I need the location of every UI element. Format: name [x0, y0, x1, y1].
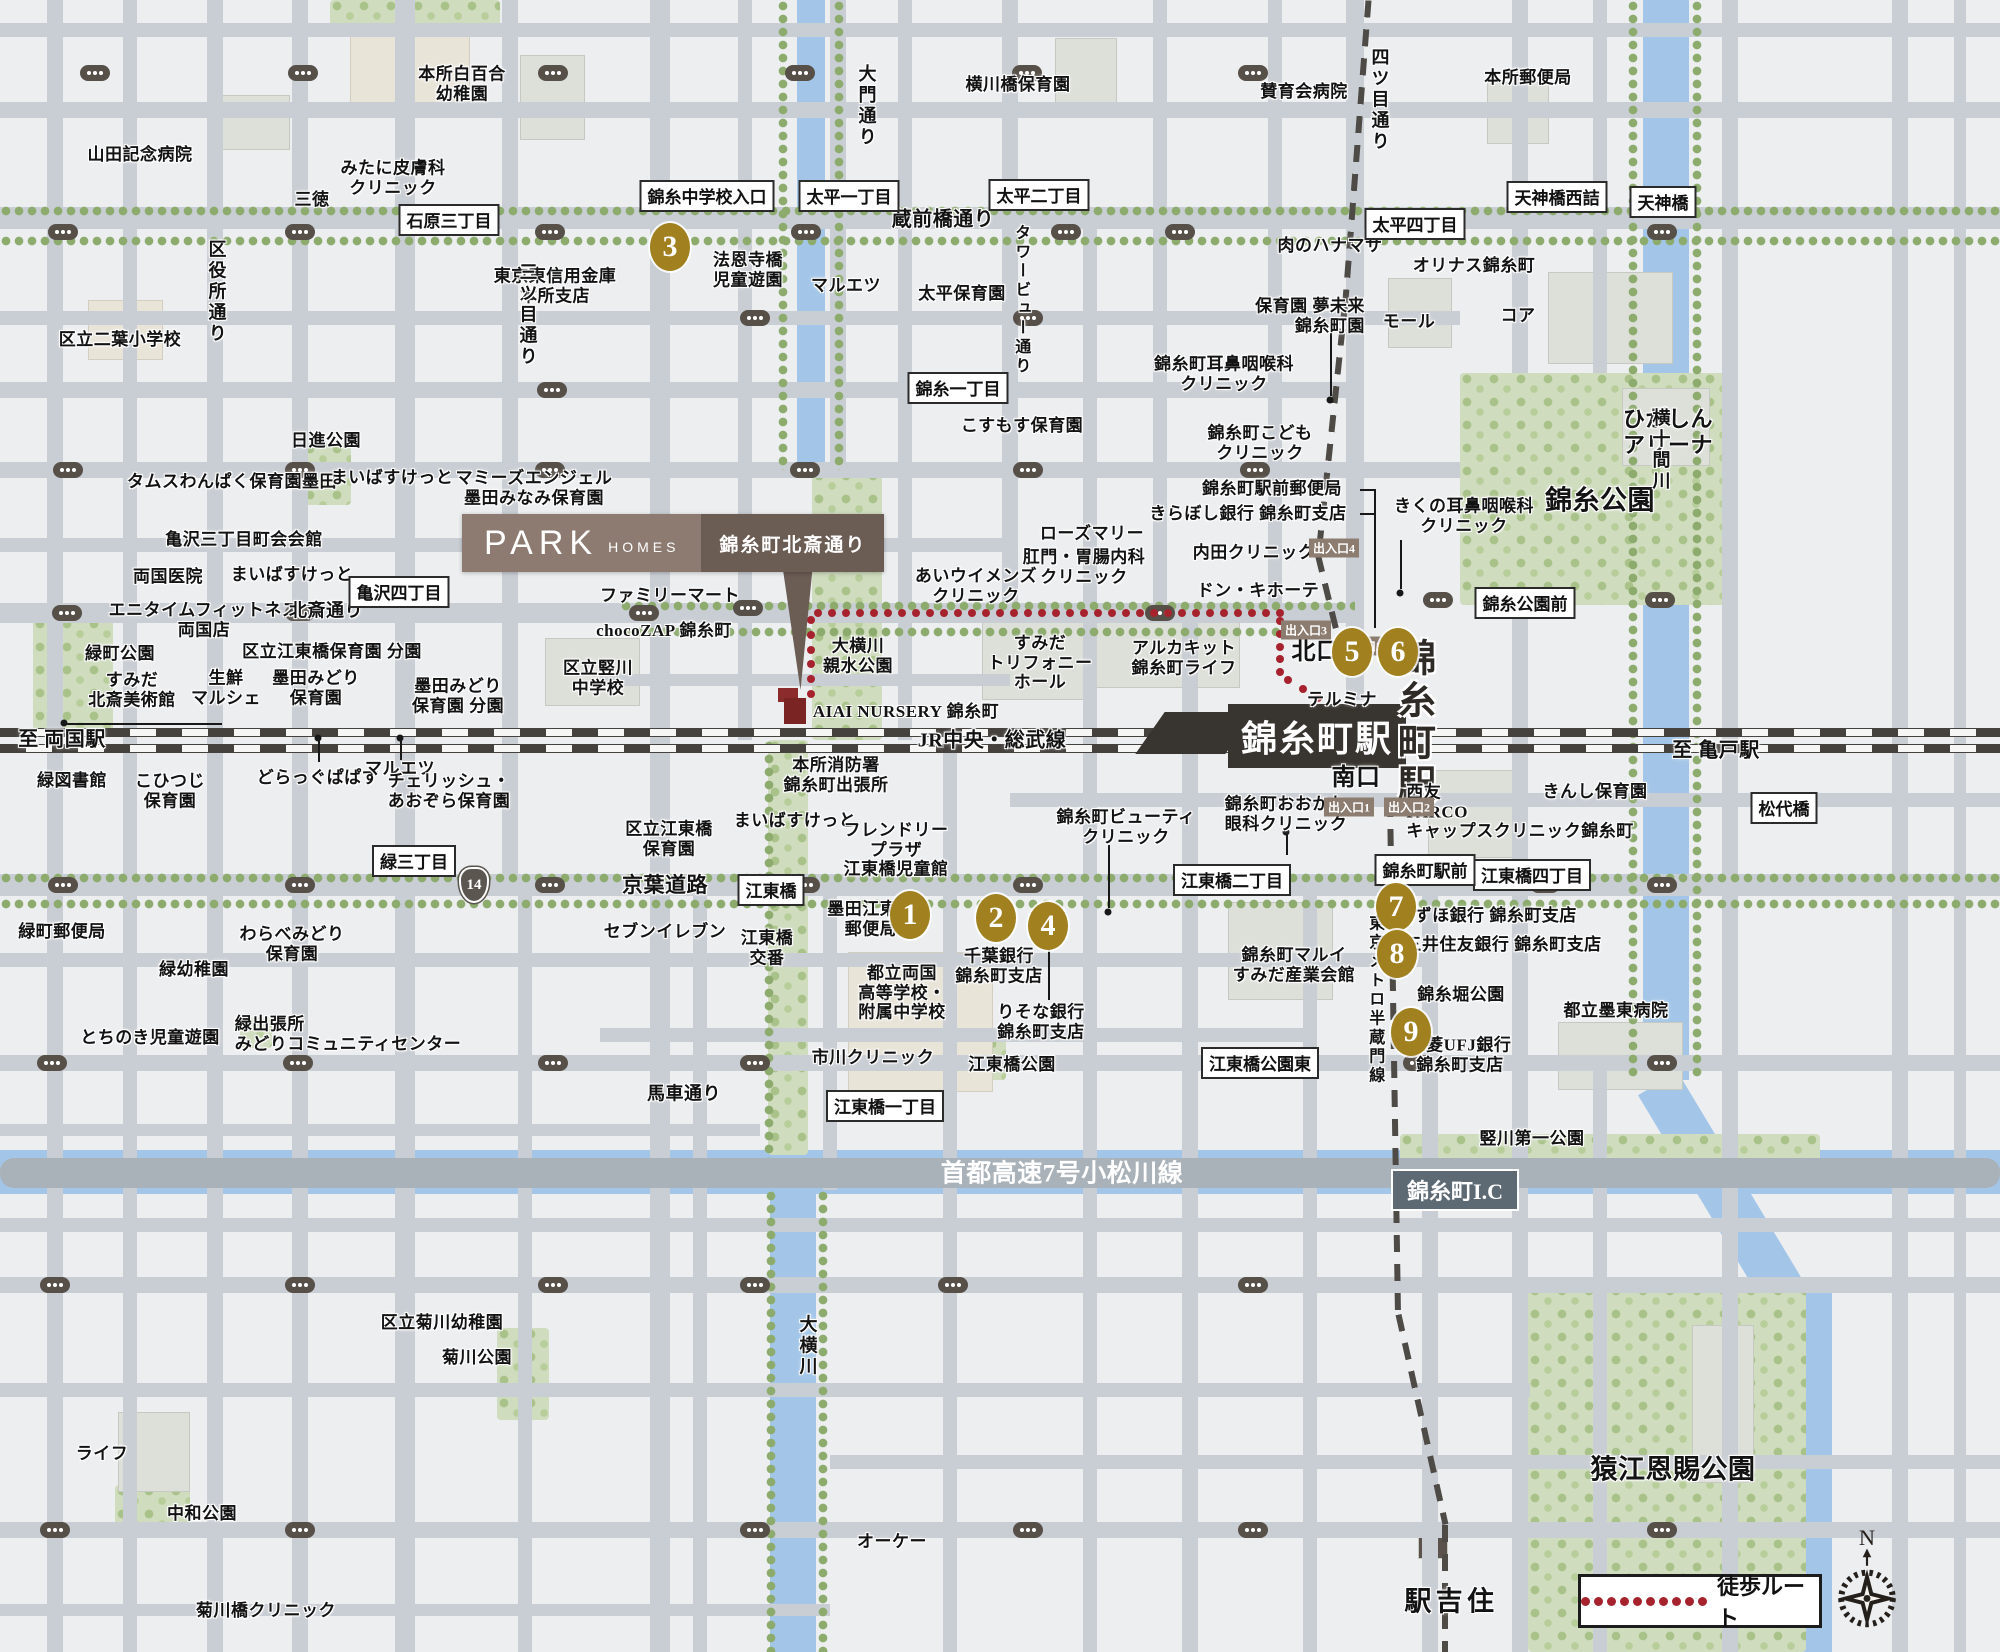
- walk-route-dot: [1276, 668, 1284, 676]
- map-label: 三井住友銀行 錦糸町支店: [1404, 935, 1601, 955]
- leader-line: [1286, 835, 1288, 855]
- bus-stop-icon: [740, 1055, 770, 1071]
- road-vertical: [1722, 0, 1738, 1652]
- map-label: 緑幼稚園: [159, 960, 229, 980]
- map-label: 大横川 親水公園: [823, 636, 893, 675]
- street-trees: [834, 0, 845, 470]
- intersection-name-box: 天神橋: [1630, 186, 1697, 218]
- property-name: 錦糸町北斎通り: [701, 514, 884, 572]
- bus-stop-icon: [1051, 224, 1081, 240]
- bus-stop-icon: [48, 877, 78, 893]
- map-label: 錦糸堀公園: [1417, 985, 1505, 1005]
- walk-route-dot: [1080, 609, 1088, 617]
- bus-stop-icon: [785, 65, 815, 81]
- intersection-name-box: 錦糸町駅前: [1375, 854, 1476, 886]
- property-location-icon: [778, 688, 808, 724]
- walk-route-dot: [898, 609, 906, 617]
- walk-route-dot: [870, 609, 878, 617]
- bus-stop-icon: [1647, 1055, 1677, 1071]
- poi-dot: [397, 735, 404, 742]
- map-label: 菊川橋クリニック: [196, 1601, 336, 1621]
- poi-dot: [1105, 909, 1112, 916]
- map-label: ライフ: [76, 1444, 129, 1464]
- map-label: 三ツ目通り: [517, 263, 538, 368]
- map-label: セブンイレブン: [604, 922, 727, 942]
- map-label: きくの耳鼻咽喉科 クリニック: [1394, 496, 1534, 535]
- map-label: まいばすけっと: [231, 565, 354, 585]
- map-label: 法恩寺橋 児童遊園: [713, 250, 783, 289]
- road-vertical: [292, 0, 308, 1652]
- map-label: 南口: [1332, 765, 1381, 793]
- map-label: 区立二葉小学校: [59, 330, 182, 350]
- walk-route-dot: [814, 609, 822, 617]
- map-label: 区立菊川幼稚園: [381, 1313, 504, 1333]
- legend-route-dots: [1581, 1597, 1707, 1606]
- bus-stop-icon: [1647, 877, 1677, 893]
- bus-stop-icon: [537, 382, 567, 398]
- street-trees: [1692, 0, 1703, 1080]
- map-label: 錦糸町駅前郵便局: [1202, 479, 1342, 499]
- park-homes-logo: PARK HOMES 錦糸町北斎通り: [462, 514, 884, 572]
- map-label: ファミリーマート: [600, 586, 740, 606]
- brand-sub-text: HOMES: [608, 539, 679, 555]
- intersection-name-box: 緑三丁目: [372, 845, 456, 877]
- map-label: 緑図書館: [37, 771, 107, 791]
- walk-route-dot: [807, 675, 815, 683]
- bus-stop-icon: [80, 65, 110, 81]
- numbered-marker: 1: [890, 891, 930, 939]
- map-label: コア: [1501, 306, 1536, 326]
- bus-stop-icon: [1013, 877, 1043, 893]
- intersection-name-box: 太平二丁目: [989, 179, 1090, 211]
- map-label: わらべみどり 保育園: [240, 924, 345, 963]
- map-label: タムスわんぱく保育園墨田: [127, 472, 337, 492]
- map-label: テルミナ: [1307, 690, 1377, 710]
- road-vertical: [123, 0, 137, 1652]
- map-label: 生鮮 マルシェ: [191, 668, 261, 707]
- intersection-name-box: 亀沢四丁目: [349, 576, 450, 608]
- map-label: 江東橋公園: [968, 1055, 1056, 1075]
- poi-dot: [1327, 397, 1334, 404]
- walk-route-dot: [996, 609, 1004, 617]
- walk-route-dot: [1234, 609, 1242, 617]
- map-label: 山田記念病院: [88, 145, 193, 165]
- walk-route-dot: [1108, 609, 1116, 617]
- bus-stop-icon: [740, 1522, 770, 1538]
- bus-stop-icon: [283, 1055, 313, 1071]
- area-map: 錦糸町駅 錦糸町駅 PARK HOMES 錦糸町北斎通り 14 徒歩ルート N …: [0, 0, 2000, 1652]
- walk-route-dot: [884, 609, 892, 617]
- map-label: 緑町公園: [85, 644, 155, 664]
- bus-stop-icon: [538, 65, 568, 81]
- numbered-marker: 2: [976, 894, 1016, 942]
- walk-route-dot: [1206, 609, 1214, 617]
- map-label: 大門通り: [856, 64, 877, 148]
- bus-stop-icon: [535, 877, 565, 893]
- walk-route-dot: [982, 609, 990, 617]
- road-vertical: [47, 0, 63, 1652]
- map-label: 竪川第一公園: [1480, 1129, 1585, 1149]
- bus-stop-icon: [538, 1055, 568, 1071]
- map-label: JR中央・総武線: [918, 729, 1066, 752]
- metro-exit-label: 出入口2: [1384, 798, 1434, 817]
- numbered-marker: 7: [1376, 883, 1416, 931]
- walk-route-dot: [940, 609, 948, 617]
- bus-stop-icon: [629, 605, 659, 621]
- walk-route-dot: [1248, 609, 1256, 617]
- numbered-marker: 6: [1378, 628, 1418, 676]
- numbered-marker: 3: [650, 223, 690, 271]
- map-label: オーケー: [857, 1532, 927, 1552]
- compass-rose-icon: N: [1824, 1528, 1910, 1644]
- leader-line: [1108, 845, 1110, 908]
- bus-stop-icon: [1645, 592, 1675, 608]
- map-label: 至 亀戸駅: [1672, 739, 1760, 762]
- map-label: タワービュー通り: [1011, 224, 1030, 376]
- map-label: マルエツ: [811, 276, 881, 296]
- map-label: まいばすけっと: [331, 468, 454, 488]
- leader-line: [1330, 333, 1332, 396]
- road-vertical: [1954, 0, 1966, 1652]
- map-label: 区立竪川 中学校: [563, 658, 633, 697]
- walk-route-dot: [1276, 655, 1284, 663]
- map-label: 緑出張所 みどりコミュニティセンター: [235, 1014, 461, 1053]
- street-trees: [818, 1190, 829, 1652]
- expressway-ic-label: 錦糸町I.C: [1393, 1171, 1517, 1209]
- intersection-name-box: 江東橋四丁目: [1473, 859, 1591, 891]
- map-label: とちのき児童遊園: [80, 1028, 220, 1048]
- walk-route-dot: [912, 609, 920, 617]
- walk-route-dot: [1299, 685, 1307, 693]
- map-label: こひつじ 保育園: [135, 771, 205, 810]
- map-label: みたに皮膚科 クリニック: [341, 158, 446, 197]
- map-label: 四ツ目通り: [1369, 48, 1390, 153]
- bus-stop-icon: [538, 1277, 568, 1293]
- map-label: 京葉道路: [622, 873, 708, 897]
- map-label: すみだ トリフォニー ホール: [988, 633, 1093, 692]
- map-label: 都立墨東病院: [1564, 1001, 1669, 1021]
- walk-route-dot: [856, 609, 864, 617]
- map-label: 西友 PARCO キャップスクリニック錦糸町: [1406, 782, 1634, 841]
- walk-route-dot: [807, 616, 815, 624]
- bus-stop-icon: [740, 1277, 770, 1293]
- map-label: 錦糸公園: [1545, 485, 1655, 516]
- map-label: 緑町郵便局: [18, 922, 106, 942]
- street-trees: [766, 1190, 777, 1652]
- map-label: マミーズエンジェル 墨田みなみ保育園: [456, 468, 613, 507]
- walk-route-dot: [1052, 609, 1060, 617]
- map-label: きらぼし銀行 錦糸町支店: [1149, 504, 1346, 524]
- numbered-marker: 8: [1377, 930, 1417, 978]
- bus-stop-icon: [1240, 462, 1270, 478]
- intersection-name-box: 太平一丁目: [799, 180, 900, 212]
- map-label: 賛育会病院: [1260, 82, 1348, 102]
- map-label: 猿江恩賜公園: [1591, 1454, 1756, 1485]
- numbered-marker: 5: [1332, 628, 1372, 676]
- building: [1055, 38, 1117, 110]
- bus-stop-icon: [1013, 1522, 1043, 1538]
- walk-route-dot: [807, 631, 815, 639]
- intersection-name-box: 松代橋: [1751, 792, 1818, 824]
- map-label: 首都高速7号小松川線: [941, 1160, 1184, 1189]
- road-horizontal: [0, 1124, 760, 1136]
- bus-stop-icon: [285, 224, 315, 240]
- map-label: AIAI NURSERY 錦糸町: [813, 702, 999, 722]
- map-label: オリナス錦糸町: [1413, 256, 1536, 276]
- map-label: 市川クリニック: [812, 1048, 935, 1068]
- walk-route-dot: [1192, 609, 1200, 617]
- map-label: りそな銀行 錦糸町支店: [997, 1002, 1085, 1041]
- poi-dot: [61, 720, 68, 727]
- map-label: 錦糸町こども クリニック: [1208, 423, 1313, 462]
- walk-route-dot: [807, 646, 815, 654]
- intersection-name-box: 江東橋公園東: [1201, 1047, 1319, 1079]
- road-horizontal: [0, 382, 1355, 398]
- walk-route-dot: [1094, 609, 1102, 617]
- map-label: 千葉銀行 錦糸町支店: [955, 946, 1043, 985]
- intersection-name-box: 江東橋一丁目: [826, 1090, 944, 1122]
- walk-route-dot: [807, 660, 815, 668]
- intersection-name-box: 天神橋西詰: [1507, 181, 1608, 213]
- map-label: 肛門・胃腸内科 クリニック: [1023, 547, 1146, 586]
- map-label: 錦糸町ビューティ クリニック: [1057, 807, 1196, 846]
- map-label: まいばすけっと: [734, 811, 857, 831]
- walk-route-dot: [1010, 609, 1018, 617]
- bus-stop-icon: [790, 462, 820, 478]
- leader-line: [1360, 489, 1374, 491]
- road-vertical: [395, 0, 415, 1652]
- walk-route-dot: [968, 609, 976, 617]
- leader-line: [318, 741, 320, 762]
- map-label: ローズマリー: [1040, 524, 1144, 544]
- numbered-marker: 4: [1028, 902, 1068, 950]
- road-horizontal: [600, 674, 1010, 686]
- walk-route-dot: [1150, 609, 1158, 617]
- map-label: 本所白百合 幼稚園: [418, 64, 506, 103]
- map-label: フレンドリー プラザ 江東橋児童館: [844, 820, 949, 879]
- walk-route-dot: [926, 609, 934, 617]
- map-label: 都立両国 高等学校・ 附属中学校: [858, 963, 946, 1022]
- intersection-name-box: 錦糸一丁目: [908, 372, 1009, 404]
- map-label: 中和公園: [167, 1504, 237, 1524]
- road-vertical: [1593, 1063, 1607, 1652]
- walk-route-dot: [1024, 609, 1032, 617]
- map-label: 墨田みどり 保育園 分園: [412, 676, 504, 715]
- map-label: 両国医院: [133, 567, 203, 587]
- map-label: どらっぐぱぱす: [257, 768, 380, 788]
- bus-stop-icon: [791, 224, 821, 240]
- map-label: 区立江東橋 保育園: [625, 819, 713, 858]
- map-label: 横十間川: [1650, 408, 1671, 492]
- bus-stop-icon: [288, 65, 318, 81]
- map-label: モール: [1383, 312, 1436, 332]
- road-horizontal: [0, 1218, 2000, 1232]
- walk-route-dot: [1164, 609, 1172, 617]
- bus-stop-icon: [1238, 1522, 1268, 1538]
- walk-route-dot: [954, 609, 962, 617]
- bus-stop-icon: [37, 1055, 67, 1071]
- map-label: みずほ銀行 錦糸町支店: [1397, 906, 1577, 926]
- map-label: 蔵前橋通り: [892, 208, 995, 231]
- walk-route-dot: [828, 609, 836, 617]
- walk-route-dot: [842, 609, 850, 617]
- road-horizontal: [0, 1383, 1530, 1397]
- walk-route-dot: [1178, 609, 1186, 617]
- leader-line: [1360, 513, 1374, 515]
- map-label: 保育園 夢未来 錦糸町園: [1255, 296, 1365, 335]
- map-label: あいウイメンズ クリニック: [915, 566, 1037, 605]
- map-label: ドン・キホーテ: [1197, 581, 1320, 601]
- intersection-name-box: 江東橋二丁目: [1173, 864, 1291, 896]
- map-label: 亀沢三丁目町会会館: [165, 530, 323, 550]
- bus-stop-icon: [1165, 224, 1195, 240]
- walk-route-dot: [1122, 609, 1130, 617]
- leader-line: [64, 723, 222, 725]
- intersection-name-box: 錦糸公園前: [1475, 587, 1576, 619]
- bus-stop-icon: [48, 224, 78, 240]
- bus-stop-icon: [938, 1277, 968, 1293]
- bus-stop-icon: [1423, 592, 1453, 608]
- map-label: 菊川公園: [442, 1348, 512, 1368]
- map-label: 墨田みどり 保育園: [272, 668, 360, 707]
- walk-route-dot: [1038, 609, 1046, 617]
- map-label: 区立江東橋保育園 分園: [242, 642, 422, 662]
- walk-route-dot: [1136, 609, 1144, 617]
- bus-stop-icon: [1238, 65, 1268, 81]
- bus-stop-icon: [285, 1277, 315, 1293]
- leader-line: [1374, 489, 1376, 628]
- metro-exit-label: 出入口3: [1281, 621, 1331, 640]
- map-label: すみだ 北斎美術館: [88, 670, 176, 709]
- map-label: 区役所通り: [206, 240, 227, 345]
- road-horizontal: [600, 1028, 1310, 1042]
- walk-route-dot: [1276, 643, 1284, 651]
- map-label: アルカキット 錦糸町ライフ: [1132, 638, 1237, 677]
- walk-route-dot: [807, 690, 815, 698]
- metro-exit-label: 出入口4: [1309, 539, 1359, 558]
- walk-route-dot: [1262, 609, 1270, 617]
- brand-text: PARK: [484, 524, 598, 563]
- map-label: 東京東信用金庫 本所支店: [494, 266, 617, 305]
- bus-stop-icon: [285, 877, 315, 893]
- intersection-name-box: 江東橋: [738, 874, 805, 906]
- metro-exit-label: 出入口1: [1324, 798, 1374, 817]
- map-label: こすもす保育園: [961, 416, 1083, 436]
- bus-stop-icon: [1647, 1522, 1677, 1538]
- map-label: 錦糸町マルイ すみだ産業会館: [1233, 945, 1356, 984]
- bus-stop-icon: [1238, 1277, 1268, 1293]
- bus-stop-icon: [1647, 224, 1677, 240]
- road-vertical: [1083, 218, 1097, 1652]
- map-label: 江東橋 交番: [741, 928, 794, 967]
- walk-route-dot: [1066, 609, 1074, 617]
- map-label: 馬車通り: [647, 1084, 721, 1105]
- intersection-name-box: 石原三丁目: [399, 204, 500, 236]
- map-label: 三徳: [295, 190, 330, 210]
- road-vertical: [1182, 613, 1198, 1652]
- legend-label: 徒歩ルート: [1717, 1569, 1819, 1633]
- bus-stop-icon: [285, 1522, 315, 1538]
- walk-route-dot: [1220, 609, 1228, 617]
- compass-north-label: N: [1859, 1528, 1875, 1550]
- map-label: 至 両国駅: [18, 728, 106, 751]
- leader-line: [1400, 540, 1402, 589]
- walk-route-legend: 徒歩ルート: [1578, 1574, 1822, 1628]
- poi-dot: [1397, 590, 1404, 597]
- map-label: chocoZAP 錦糸町: [596, 621, 732, 641]
- bus-stop-icon: [40, 1277, 70, 1293]
- walk-route-dot: [1276, 609, 1284, 617]
- map-label: 本所消防署 錦糸町出張所: [784, 755, 889, 794]
- bus-stop-icon: [40, 1522, 70, 1538]
- map-label: 日進公園: [291, 431, 361, 451]
- bus-stop-icon: [53, 462, 83, 478]
- route-14-shield: 14: [459, 867, 489, 903]
- map-label: 錦糸町耳鼻咽喉科 クリニック: [1154, 354, 1294, 393]
- numbered-marker: 9: [1391, 1008, 1431, 1056]
- road-horizontal: [830, 1455, 2000, 1469]
- leader-line: [400, 741, 402, 760]
- logo-brand-block: PARK HOMES: [462, 514, 701, 572]
- bus-stop-icon: [535, 224, 565, 240]
- map-label: 内田クリニック: [1193, 543, 1316, 563]
- poi-dot: [315, 735, 322, 742]
- road-horizontal: [0, 1604, 830, 1616]
- map-label: エニタイムフィットネス 両国店: [109, 600, 300, 639]
- map-label: 大横川: [797, 1315, 818, 1378]
- jr-kinshicho-station: 錦糸町駅: [1228, 704, 1406, 768]
- map-label: チェリッシュ・ あおぞら保育園: [388, 771, 511, 810]
- bus-stop-icon: [740, 310, 770, 326]
- intersection-name-box: 錦糸中学校入口: [640, 180, 775, 212]
- map-label: 住吉駅: [1399, 1576, 1493, 1627]
- bus-stop-icon: [52, 605, 82, 621]
- map-label: 横川橋保育園: [966, 75, 1071, 95]
- bus-stop-icon: [1013, 462, 1043, 478]
- walk-route-dot: [1284, 676, 1292, 684]
- building: [1548, 272, 1673, 364]
- road-vertical: [1892, 0, 1908, 1652]
- street-trees: [1628, 0, 1639, 1080]
- intersection-name-box: 太平四丁目: [1365, 208, 1466, 240]
- map-label: 本所郵便局: [1484, 68, 1572, 88]
- map-label: 太平保育園: [918, 284, 1006, 304]
